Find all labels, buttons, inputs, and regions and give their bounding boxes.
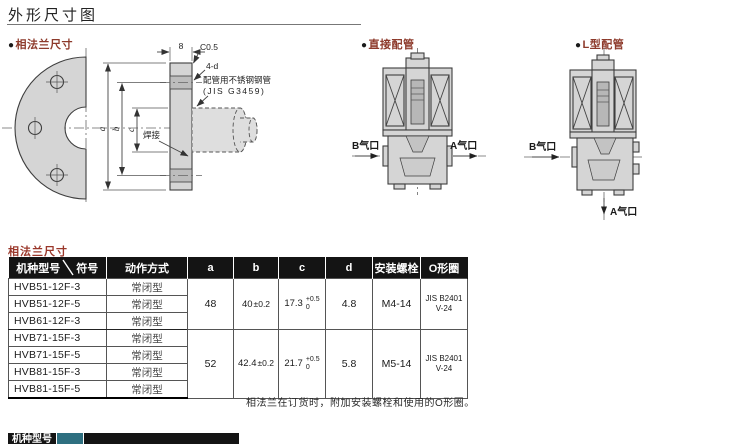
port-b-boss xyxy=(383,146,388,166)
dim-d-cell: 4.8 xyxy=(326,279,373,330)
dim-8-label: 8 xyxy=(179,41,184,51)
table-footnote: 相法兰在订货时，附加安装螺栓和使用的O形圈。 xyxy=(246,394,475,409)
flow-cavity xyxy=(400,158,435,176)
action-cell: 常闭型 xyxy=(107,279,188,296)
oring-cell: JIS B2401 V-24 xyxy=(421,330,468,399)
oring-cell: JIS B2401 V-24 xyxy=(421,279,468,330)
col-header-b: b xyxy=(234,257,279,279)
side-tab-upper xyxy=(633,142,639,152)
col-header-d: d xyxy=(326,257,373,279)
dim-b-cell: 42.4±0.2 xyxy=(234,330,279,399)
dim-c-cell: 21.7+0.50 xyxy=(279,330,326,399)
header-row: 机种型号 符号 动作方式 a b c d 安装螺栓 O形圈 xyxy=(9,257,468,279)
bonnet-flange xyxy=(570,132,636,138)
next-table-model-header: 机种型号 xyxy=(8,433,56,444)
bonnet-flange xyxy=(383,130,452,136)
plunger xyxy=(597,82,609,126)
col-header-bolt: 安装螺栓 xyxy=(373,257,421,279)
pipe-note-line2: (JIS G3459) xyxy=(203,86,265,96)
col-header-a: a xyxy=(188,257,234,279)
weld-label: 焊接 xyxy=(143,130,161,140)
partial-header-rest xyxy=(84,433,239,444)
port-a-label: A气口 xyxy=(610,205,637,218)
col-header-symbol: 符号 xyxy=(76,260,98,276)
col-header-model-symbol: 机种型号 符号 xyxy=(9,257,107,279)
model-cell: HVB51-12F-3 xyxy=(9,279,107,296)
action-cell: 常闭型 xyxy=(107,347,188,364)
chamfer-label: C0.5 xyxy=(200,42,218,52)
port-b-label: B气口 xyxy=(352,139,379,152)
bolt-cell: M5-14 xyxy=(373,330,421,399)
partial-header-cell xyxy=(57,433,83,444)
top-nub xyxy=(411,53,424,59)
action-cell: 常闭型 xyxy=(107,381,188,399)
direct-piping-valve-drawing: B气口 A气口 xyxy=(350,30,490,205)
dim-b-cell: 40±0.2 xyxy=(234,279,279,330)
col-header-action: 动作方式 xyxy=(107,257,188,279)
diagonal-divider xyxy=(62,259,74,276)
page-title: 外形尺寸图 xyxy=(8,4,98,25)
port-b-boss xyxy=(572,147,577,167)
side-tab-lower xyxy=(633,164,639,174)
bolt-cell: M4-14 xyxy=(373,279,421,330)
flow-cavity xyxy=(588,160,620,180)
col-header-model: 机种型号 xyxy=(16,260,60,276)
model-cell: HVB81-15F-5 xyxy=(9,381,107,399)
dim-c-cell: 17.3+0.50 xyxy=(279,279,326,330)
dimension-drawing-page: { "title": "外形尺寸图", "flange_section": { … xyxy=(0,0,750,444)
dim-d-cell: 5.8 xyxy=(326,330,373,399)
dim-a-label: a xyxy=(97,126,107,131)
dim-b-label: b xyxy=(111,126,121,131)
action-cell: 常闭型 xyxy=(107,364,188,381)
dim-a-cell: 52 xyxy=(188,330,234,399)
l-type-piping-valve-drawing: B气口 A气口 xyxy=(520,30,710,235)
dim-a-cell: 48 xyxy=(188,279,234,330)
port-a-label: A气口 xyxy=(450,139,477,152)
port-b-label: B气口 xyxy=(529,140,556,153)
foot-left xyxy=(582,190,592,195)
action-cell: 常闭型 xyxy=(107,296,188,313)
model-cell: HVB81-15F-3 xyxy=(9,364,107,381)
model-cell: HVB61-12F-3 xyxy=(9,313,107,330)
hole-count-label: 4-d xyxy=(206,61,219,71)
flange-spec-table: 机种型号 符号 动作方式 a b c d 安装螺栓 O形圈 HVB51-12F-… xyxy=(8,257,468,399)
table-row: HVB51-12F-3 常闭型 48 40±0.2 17.3+0.50 4.8 … xyxy=(9,279,468,296)
model-cell: HVB71-15F-5 xyxy=(9,347,107,364)
flange-dimension-drawing: 8 C0.5 4-d 配管用不锈钢钢管 (JIS G3459) 焊接 a b c xyxy=(0,30,310,215)
plunger xyxy=(411,80,424,124)
action-cell: 常闭型 xyxy=(107,330,188,347)
model-cell: HVB51-12F-5 xyxy=(9,296,107,313)
dim-c-label: c xyxy=(126,128,136,132)
top-cap xyxy=(592,60,614,70)
col-header-oring: O形圈 xyxy=(421,257,468,279)
top-nub xyxy=(597,55,609,60)
foot-left xyxy=(394,184,405,189)
model-cell: HVB71-15F-3 xyxy=(9,330,107,347)
action-cell: 常闭型 xyxy=(107,313,188,330)
foot-right xyxy=(614,190,624,195)
title-underline xyxy=(7,24,361,25)
col-header-c: c xyxy=(279,257,326,279)
next-table-partial-header: 机种型号 xyxy=(8,433,239,444)
table-row: HVB71-15F-3 常闭型 52 42.4±0.2 21.7+0.50 5.… xyxy=(9,330,468,347)
pipe-note-line1: 配管用不锈钢钢管 xyxy=(203,75,271,85)
foot-right xyxy=(430,184,441,189)
